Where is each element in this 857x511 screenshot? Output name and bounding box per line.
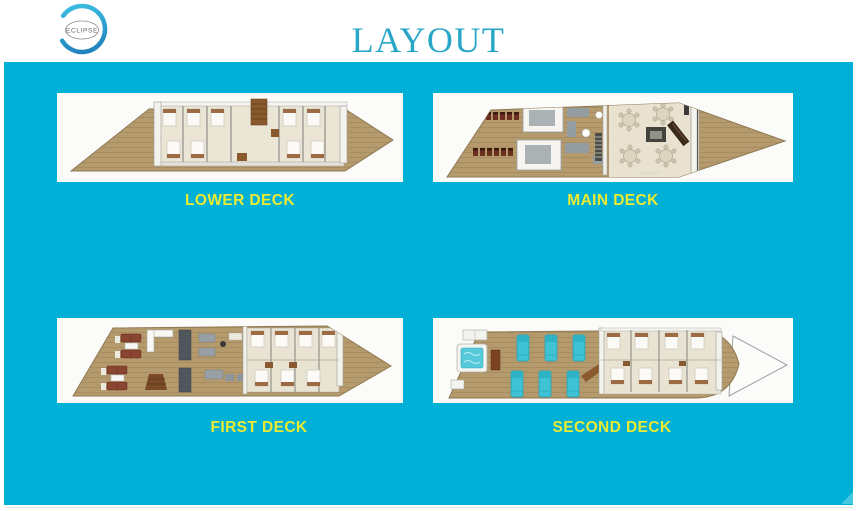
bottom-divider [4, 507, 853, 508]
page-title: LAYOUT [0, 22, 857, 60]
lower-deck-plan-image [57, 93, 403, 182]
second-deck-card [433, 318, 793, 403]
second-deck-label: SECOND DECK [553, 419, 672, 437]
layout-page: ECLIPSE LAYOUT [0, 0, 857, 511]
main-deck-card [433, 93, 793, 182]
lower-deck-card [57, 93, 403, 182]
second-deck-plan-image [433, 318, 793, 403]
lower-deck-label: LOWER DECK [185, 192, 295, 210]
main-deck-label: MAIN DECK [567, 192, 658, 210]
main-deck-plan-image [433, 93, 793, 182]
first-deck-label: FIRST DECK [211, 419, 308, 437]
first-deck-plan-image [57, 318, 403, 403]
first-deck-card [57, 318, 403, 403]
corner-watermark [841, 491, 854, 504]
